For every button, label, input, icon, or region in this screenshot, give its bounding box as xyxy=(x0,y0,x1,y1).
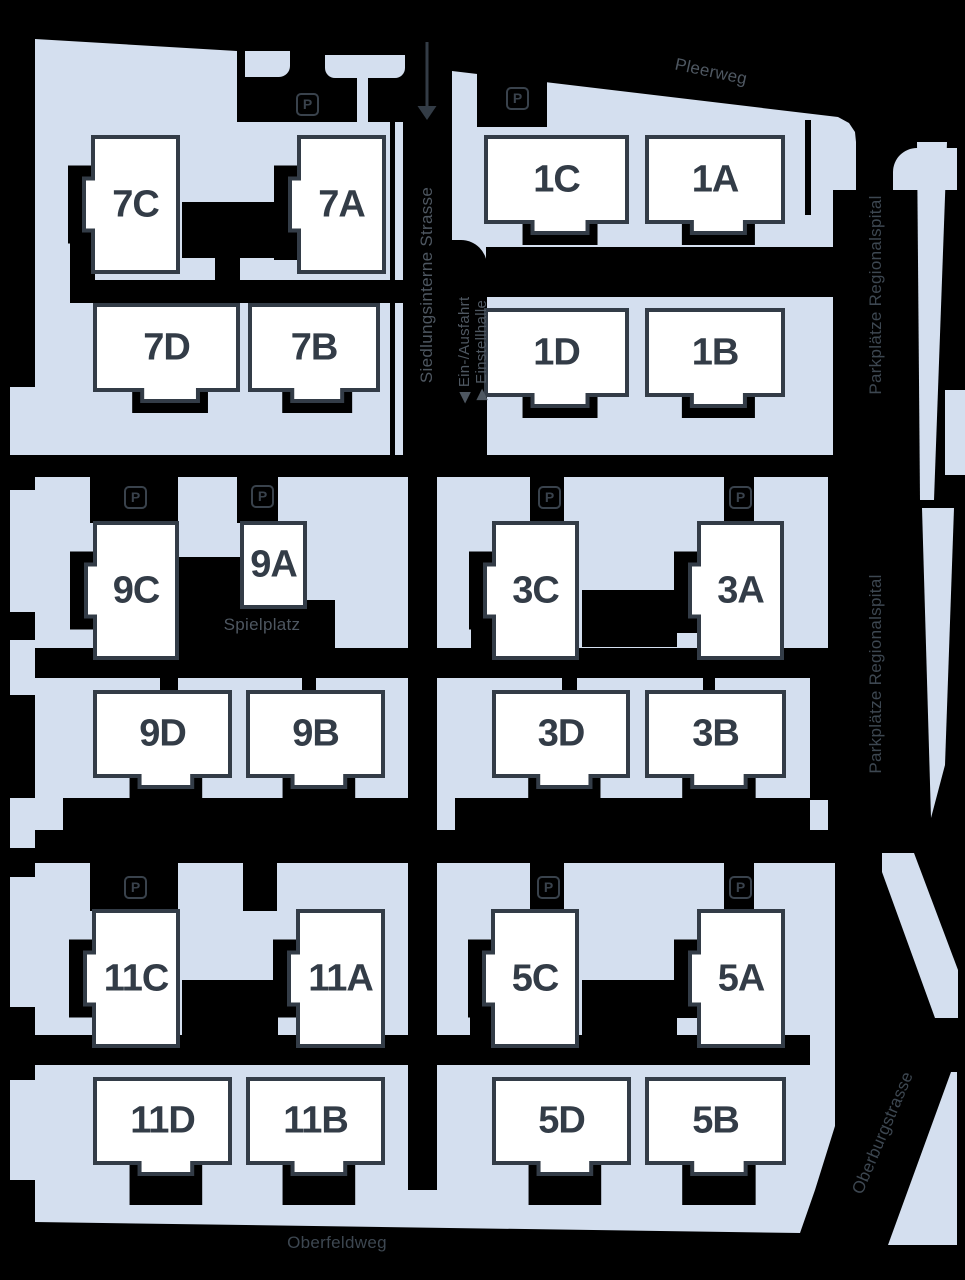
building-label-1D: 1D xyxy=(533,331,580,374)
building-label-1C: 1C xyxy=(533,158,580,201)
street-label-parkplaetze-regionalspital-1: Parkplätze Regionalspital xyxy=(866,195,886,394)
parking-icon: P xyxy=(124,486,147,509)
parking-icon: P xyxy=(538,486,561,509)
street-label-einstellhalle: ▶ Einstellhalle xyxy=(472,300,490,400)
building-label-5B: 5B xyxy=(692,1100,739,1143)
parking-icon: P xyxy=(537,876,560,899)
building-label-3D: 3D xyxy=(538,713,585,756)
building-label-9B: 9B xyxy=(292,713,339,756)
building-label-3C: 3C xyxy=(512,569,559,612)
street-label-pleerweg: Pleerweg xyxy=(673,55,749,90)
parking-icon: P xyxy=(506,87,529,110)
site-plan-overlay: 7C7A7D7B1C1A1D1B9C9A9D9B3C3A3D3B11C11A11… xyxy=(0,0,965,1280)
building-label-11D: 11D xyxy=(130,1100,195,1143)
building-label-11C: 11C xyxy=(104,957,169,1000)
building-label-9A: 9A xyxy=(250,544,297,587)
building-label-1B: 1B xyxy=(692,331,739,374)
parking-icon: P xyxy=(729,876,752,899)
street-label-oberburgstrasse: Oberburgstrasse xyxy=(848,1069,918,1198)
street-label-oberfeldweg: Oberfeldweg xyxy=(287,1233,387,1253)
building-label-11B: 11B xyxy=(283,1100,348,1143)
building-label-1A: 1A xyxy=(692,158,739,201)
building-label-7D: 7D xyxy=(143,326,190,369)
parking-icon: P xyxy=(124,876,147,899)
building-label-3B: 3B xyxy=(692,713,739,756)
building-label-11A: 11A xyxy=(308,957,373,1000)
parking-icon: P xyxy=(729,486,752,509)
building-label-5D: 5D xyxy=(538,1100,585,1143)
street-label-parkplaetze-regionalspital-2: Parkplätze Regionalspital xyxy=(866,574,886,773)
building-label-9D: 9D xyxy=(139,713,186,756)
building-label-5C: 5C xyxy=(512,957,559,1000)
parking-icon: P xyxy=(251,485,274,508)
building-label-9C: 9C xyxy=(113,569,160,612)
building-label-5A: 5A xyxy=(718,957,765,1000)
building-label-3A: 3A xyxy=(717,569,764,612)
street-label-ein-ausfahrt: ◀ Ein-/Ausfahrt xyxy=(455,297,473,404)
building-label-7B: 7B xyxy=(291,326,338,369)
street-label-siedlungsinterne-strasse: Siedlungsinterne Strasse xyxy=(417,187,437,383)
building-label-7C: 7C xyxy=(112,183,159,226)
building-label-7A: 7A xyxy=(318,183,365,226)
parking-icon: P xyxy=(296,93,319,116)
site-plan-map: 7C7A7D7B1C1A1D1B9C9A9D9B3C3A3D3B11C11A11… xyxy=(0,0,965,1280)
street-label-spielplatz: Spielplatz xyxy=(224,615,301,635)
